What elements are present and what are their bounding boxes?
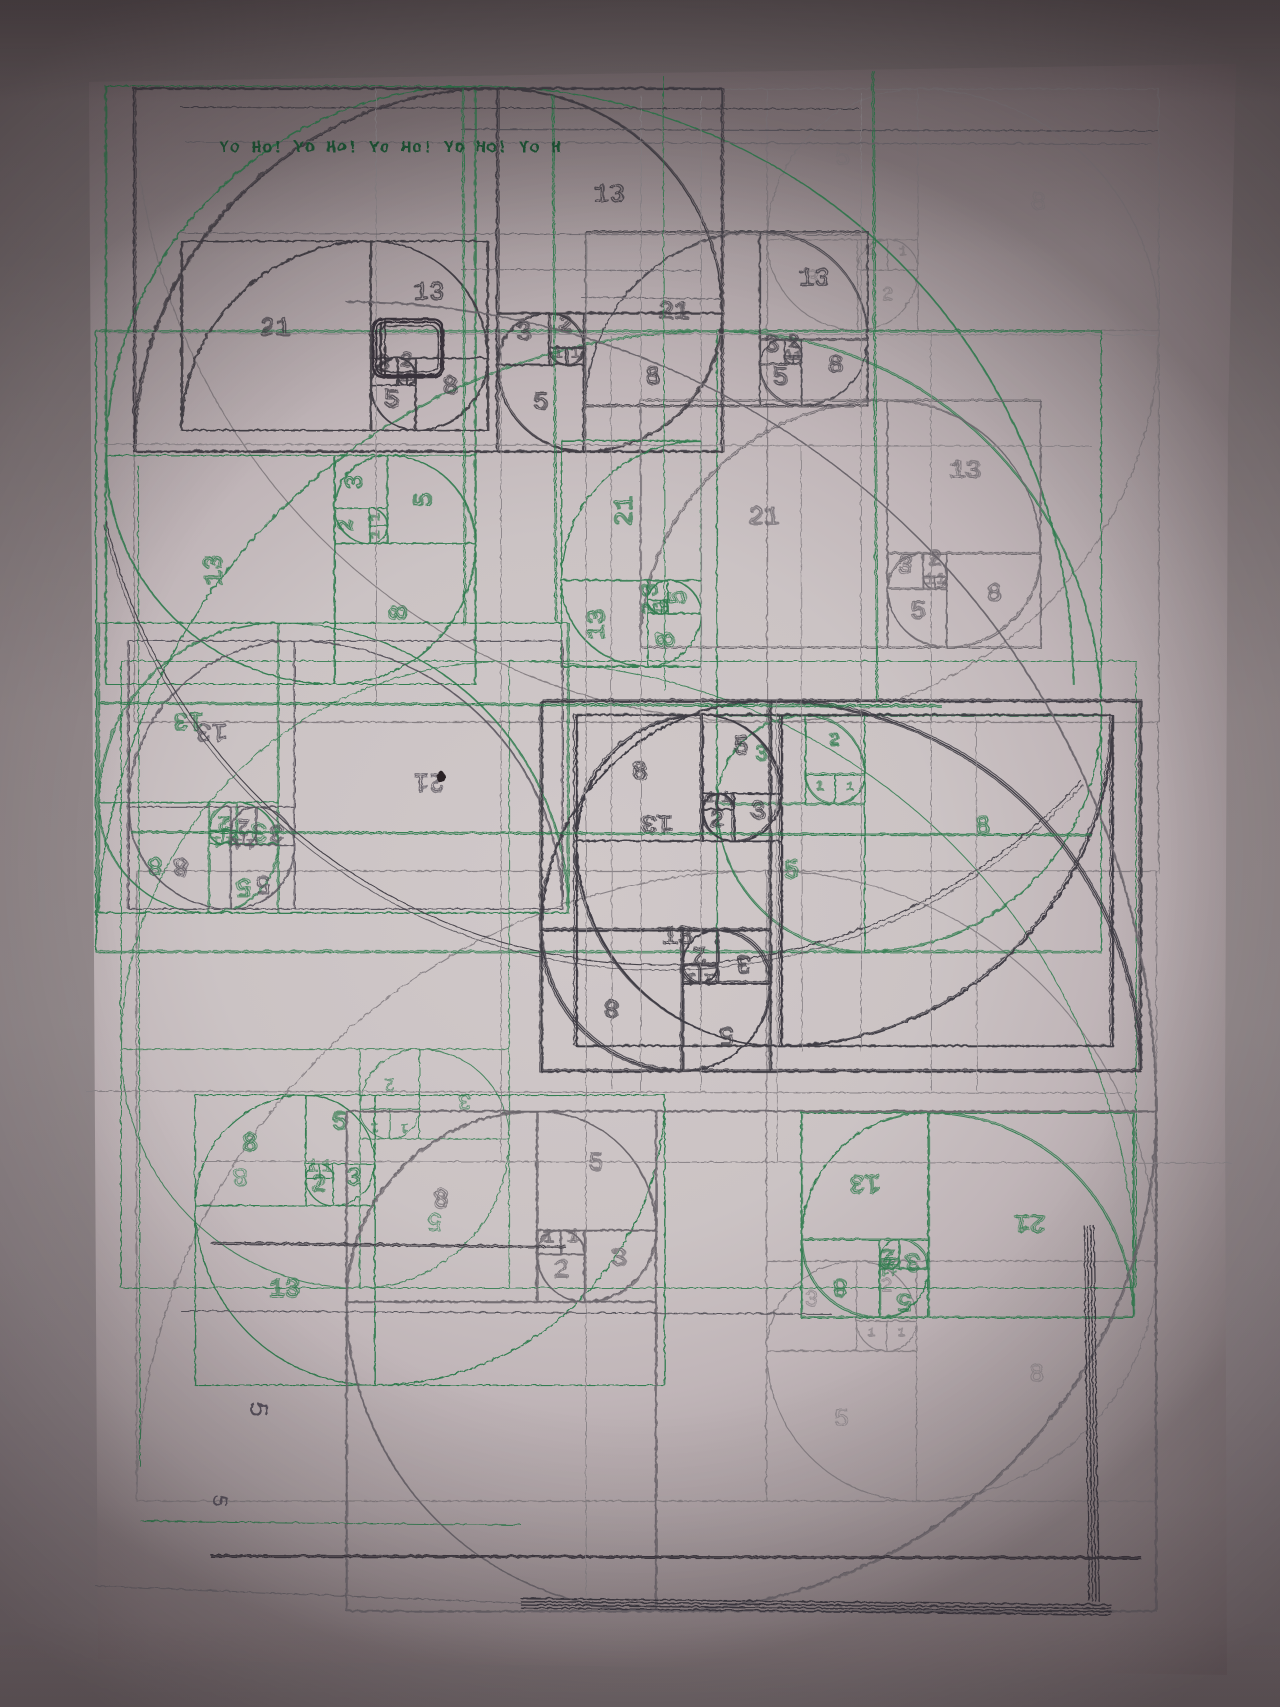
svg-text:3: 3 xyxy=(456,1086,470,1112)
svg-text:3: 3 xyxy=(804,1286,818,1312)
svg-text:8: 8 xyxy=(240,1128,256,1158)
svg-text:5: 5 xyxy=(241,1399,272,1417)
svg-text:2: 2 xyxy=(880,1274,891,1296)
svg-text:5: 5 xyxy=(896,1285,912,1315)
svg-text:1: 1 xyxy=(815,778,823,793)
svg-text:5: 5 xyxy=(330,1105,346,1135)
svg-text:5: 5 xyxy=(663,588,693,604)
svg-text:2: 2 xyxy=(236,814,249,837)
svg-text:3: 3 xyxy=(754,741,768,767)
svg-text:21: 21 xyxy=(747,501,778,531)
svg-text:5: 5 xyxy=(233,870,249,900)
svg-text:1: 1 xyxy=(542,1226,553,1246)
svg-text:1: 1 xyxy=(898,243,906,258)
svg-text:3: 3 xyxy=(896,550,912,580)
svg-text:2: 2 xyxy=(828,729,839,749)
svg-text:2: 2 xyxy=(638,602,661,614)
svg-text:2: 2 xyxy=(880,1241,894,1268)
svg-text:1: 1 xyxy=(923,569,933,587)
svg-text:5: 5 xyxy=(833,1403,849,1433)
svg-text:21: 21 xyxy=(609,494,639,525)
svg-text:13: 13 xyxy=(798,263,829,293)
svg-text:13: 13 xyxy=(950,454,981,484)
svg-text:21: 21 xyxy=(1012,1206,1043,1236)
svg-text:8: 8 xyxy=(831,1271,847,1301)
svg-text:3: 3 xyxy=(763,332,777,359)
svg-text:13: 13 xyxy=(412,276,443,306)
svg-text:5: 5 xyxy=(910,595,926,625)
svg-text:3: 3 xyxy=(903,1244,919,1274)
svg-text:3: 3 xyxy=(610,1243,626,1273)
svg-text:13: 13 xyxy=(199,554,229,585)
svg-text:3: 3 xyxy=(340,473,369,488)
svg-text:8: 8 xyxy=(644,362,660,392)
svg-text:2: 2 xyxy=(708,807,722,833)
svg-text:1: 1 xyxy=(552,343,562,361)
svg-text:2: 2 xyxy=(334,517,357,529)
svg-text:8: 8 xyxy=(432,1185,448,1215)
svg-text:8: 8 xyxy=(441,370,457,400)
svg-text:3: 3 xyxy=(345,1162,361,1192)
svg-text:1: 1 xyxy=(400,1119,408,1134)
svg-text:5: 5 xyxy=(254,867,270,897)
svg-text:5: 5 xyxy=(783,854,799,884)
svg-text:3: 3 xyxy=(735,946,751,976)
svg-text:5: 5 xyxy=(771,361,787,391)
svg-text:2: 2 xyxy=(309,1169,324,1198)
svg-text:1: 1 xyxy=(868,243,876,258)
svg-text:2: 2 xyxy=(383,1072,394,1092)
svg-text:8: 8 xyxy=(173,850,189,880)
svg-text:1: 1 xyxy=(685,967,695,986)
svg-text:8: 8 xyxy=(232,1160,248,1190)
svg-text:1: 1 xyxy=(720,788,730,806)
svg-text:8: 8 xyxy=(1028,1358,1044,1388)
svg-text:1: 1 xyxy=(867,1324,875,1339)
svg-text:1: 1 xyxy=(704,788,714,806)
svg-text:13: 13 xyxy=(267,1274,298,1304)
svg-text:8: 8 xyxy=(650,630,680,646)
svg-text:2: 2 xyxy=(400,348,412,371)
svg-text:5: 5 xyxy=(834,141,850,171)
svg-text:5: 5 xyxy=(533,387,549,417)
svg-text:8: 8 xyxy=(986,578,1002,608)
svg-text:8: 8 xyxy=(602,991,618,1021)
svg-text:8: 8 xyxy=(1030,187,1046,217)
svg-text:5: 5 xyxy=(382,383,398,413)
svg-text:1: 1 xyxy=(845,778,853,793)
svg-text:1: 1 xyxy=(569,343,579,361)
svg-text:1: 1 xyxy=(568,1225,579,1245)
svg-text:8: 8 xyxy=(828,349,844,379)
svg-text:5: 5 xyxy=(587,1147,603,1177)
svg-text:Yo Ho! Yo Ho! Yo Ho! Yo Ho! Yo: Yo Ho! Yo Ho! Yo Ho! Yo Ho! Yo H xyxy=(218,138,560,157)
svg-text:13: 13 xyxy=(580,608,610,639)
svg-text:5: 5 xyxy=(408,491,438,507)
svg-text:5: 5 xyxy=(204,1491,231,1508)
svg-text:5: 5 xyxy=(718,1019,734,1049)
svg-text:3: 3 xyxy=(750,796,766,826)
svg-text:2: 2 xyxy=(553,1254,569,1284)
svg-text:1: 1 xyxy=(897,1324,905,1339)
svg-text:13: 13 xyxy=(641,807,672,837)
svg-text:13: 13 xyxy=(592,179,623,209)
svg-text:8: 8 xyxy=(384,603,414,619)
svg-text:13: 13 xyxy=(195,716,226,746)
svg-text:1: 1 xyxy=(703,967,713,986)
svg-text:13: 13 xyxy=(849,1166,880,1196)
svg-text:5: 5 xyxy=(732,730,748,760)
svg-text:3: 3 xyxy=(637,581,664,595)
svg-text:1: 1 xyxy=(935,569,945,587)
svg-text:2: 2 xyxy=(881,283,892,305)
svg-text:21: 21 xyxy=(258,311,289,341)
